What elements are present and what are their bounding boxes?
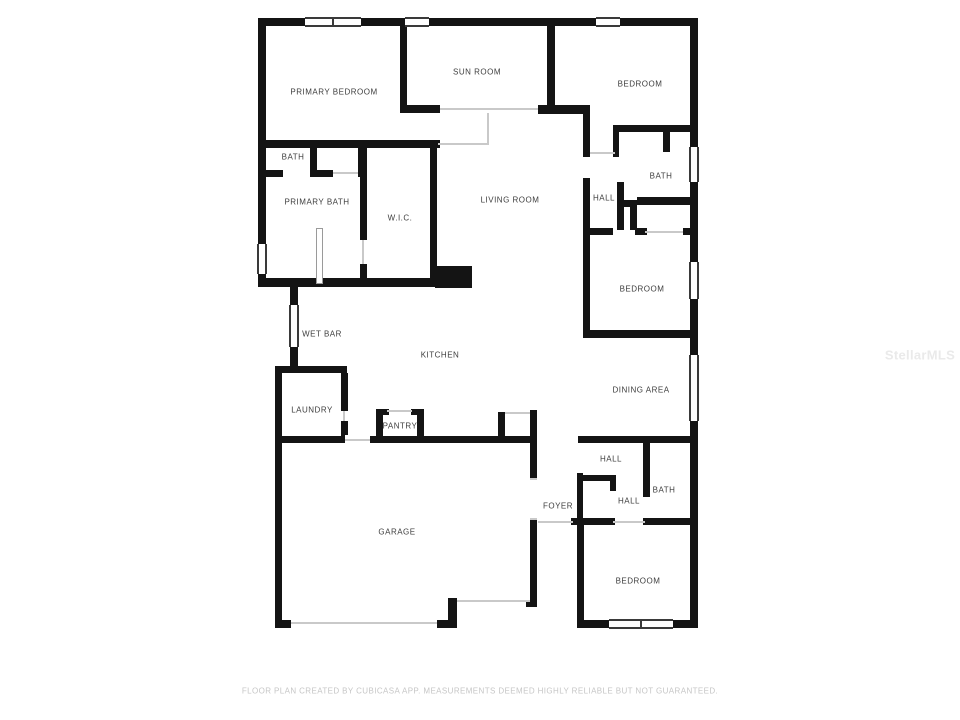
wall — [448, 598, 457, 622]
window — [596, 17, 620, 27]
window — [689, 262, 699, 299]
wall — [690, 18, 698, 627]
wall — [435, 266, 472, 288]
room-label-primary-bedroom: PRIMARY BEDROOM — [290, 88, 377, 97]
door-opening — [505, 412, 530, 414]
window — [689, 355, 699, 421]
shower-glass — [316, 228, 323, 284]
wall — [275, 620, 291, 628]
wall — [617, 182, 624, 230]
wall — [583, 113, 590, 157]
door-opening — [440, 108, 538, 110]
door-opening — [645, 231, 683, 233]
room-label-laundry: LAUNDRY — [291, 406, 333, 415]
room-label-kitchen: KITCHEN — [421, 351, 460, 360]
door-opening — [438, 143, 488, 145]
wall — [643, 440, 650, 497]
room-label-bath-lower: BATH — [653, 486, 676, 495]
wall — [275, 366, 347, 373]
wall — [643, 518, 698, 525]
room-label-bedroom-mid-right: BEDROOM — [620, 285, 665, 294]
wall — [310, 148, 317, 177]
wall — [258, 278, 440, 287]
wall — [411, 409, 424, 415]
wall — [571, 518, 615, 525]
room-label-pantry: PANTRY — [383, 422, 418, 431]
wall — [613, 125, 698, 132]
room-label-dining-area: DINING AREA — [612, 386, 669, 395]
door-opening — [387, 410, 412, 412]
door-opening — [343, 411, 345, 421]
wall — [630, 207, 637, 230]
wall — [258, 140, 440, 148]
room-label-living-room: LIVING ROOM — [481, 196, 540, 205]
wall — [583, 178, 590, 235]
room-label-hall-mid: HALL — [600, 455, 622, 464]
window-tick — [640, 619, 642, 629]
wall — [498, 412, 505, 438]
wall — [610, 475, 616, 491]
room-label-wic: W.I.C. — [388, 214, 413, 223]
room-label-hall-lower: HALL — [618, 497, 640, 506]
room-label-bedroom-top-right: BEDROOM — [618, 80, 663, 89]
wall — [637, 197, 698, 205]
floor-plan: PRIMARY BEDROOM SUN ROOM BEDROOM BATH PR… — [0, 0, 960, 720]
room-label-bath-small: BATH — [282, 153, 305, 162]
window — [405, 17, 429, 27]
window-tick — [332, 17, 334, 27]
wall — [400, 105, 440, 113]
wall — [577, 521, 584, 625]
room-label-bedroom-bottom: BEDROOM — [616, 577, 661, 586]
room-label-garage: GARAGE — [378, 528, 415, 537]
wall — [258, 170, 283, 177]
wall — [583, 330, 698, 338]
wall — [341, 373, 348, 411]
window — [689, 147, 699, 182]
wall — [275, 366, 282, 628]
door-opening — [333, 172, 358, 174]
disclaimer-text: FLOOR PLAN CREATED BY CUBICASA APP. MEAS… — [242, 687, 718, 696]
wall — [578, 436, 698, 443]
door-opening — [538, 521, 573, 523]
door-opening — [590, 152, 615, 154]
wall — [317, 170, 333, 177]
wall — [530, 410, 537, 480]
watermark: StellarMLS — [885, 348, 955, 363]
wall — [683, 228, 690, 235]
wall — [663, 132, 670, 152]
wall — [360, 148, 367, 240]
door-opening — [613, 521, 645, 523]
wall — [547, 18, 555, 113]
room-label-foyer: FOYER — [543, 502, 573, 511]
door-opening — [487, 113, 489, 145]
wall — [400, 18, 407, 113]
room-label-primary-bath: PRIMARY BATH — [284, 198, 349, 207]
wall — [360, 264, 367, 285]
garage-door-line — [291, 622, 437, 624]
wall — [583, 235, 590, 336]
door-opening — [362, 240, 364, 264]
door-opening — [530, 518, 537, 520]
wall — [290, 344, 298, 368]
window — [289, 305, 299, 347]
wall — [430, 148, 437, 279]
window — [257, 244, 267, 274]
wall — [624, 200, 637, 207]
wall — [530, 520, 537, 607]
door-opening — [345, 439, 370, 441]
room-label-wet-bar: WET BAR — [302, 330, 342, 339]
porch-edge-line — [457, 600, 530, 602]
room-label-sun-room: SUN ROOM — [453, 68, 501, 77]
wall — [583, 228, 613, 235]
room-label-bath-top-right: BATH — [650, 172, 673, 181]
door-opening — [530, 478, 537, 480]
room-label-hall-top: HALL — [593, 194, 615, 203]
